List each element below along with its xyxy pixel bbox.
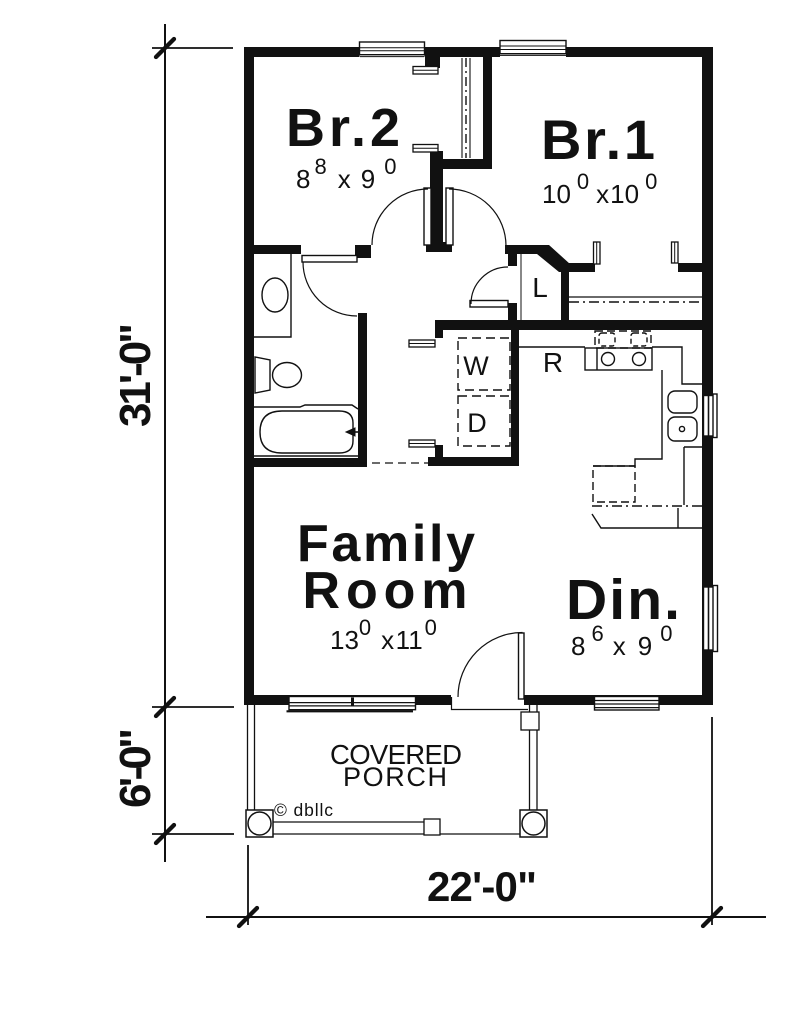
svg-text:PORCH: PORCH [343,762,447,792]
svg-text:L: L [532,272,548,303]
svg-text:D: D [467,408,487,438]
svg-text:W: W [463,351,489,381]
svg-text:Br.1: Br.1 [541,108,655,171]
svg-text:© dbllc: © dbllc [274,800,333,820]
svg-text:Br.2: Br.2 [286,98,400,158]
svg-text:R: R [543,347,563,378]
svg-text:Room: Room [303,562,468,620]
svg-text:31'-0": 31'-0" [111,323,160,427]
svg-text:22'-0": 22'-0" [427,863,537,910]
svg-text:6'-0": 6'-0" [111,728,160,808]
